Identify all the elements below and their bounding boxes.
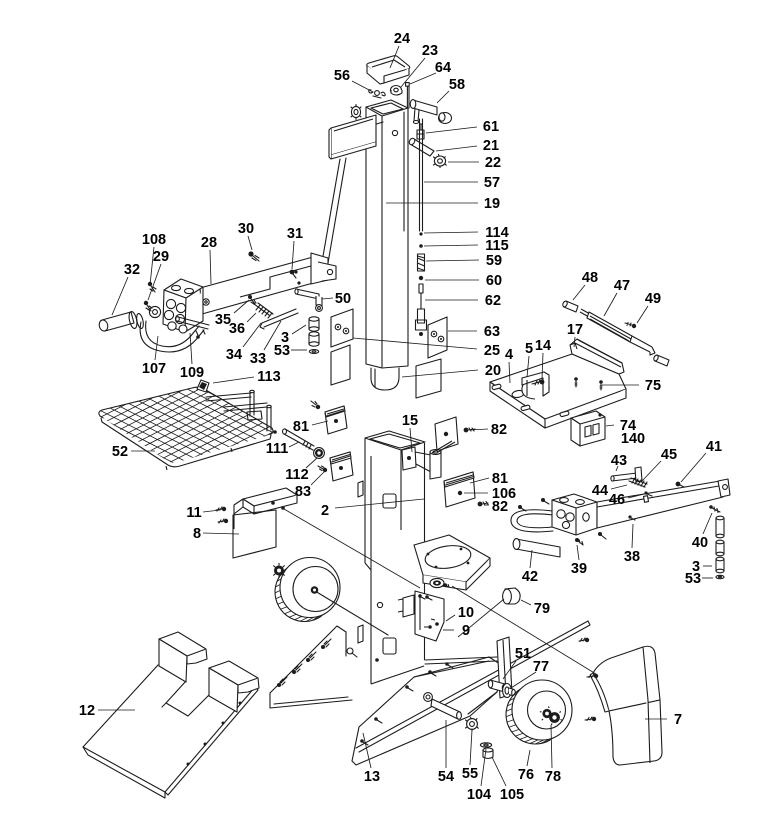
svg-text:11: 11 bbox=[186, 505, 201, 521]
svg-text:81: 81 bbox=[492, 471, 508, 487]
svg-text:52: 52 bbox=[112, 444, 128, 460]
svg-text:53: 53 bbox=[274, 343, 290, 359]
svg-text:19: 19 bbox=[484, 196, 500, 212]
svg-text:108: 108 bbox=[142, 232, 166, 248]
svg-text:57: 57 bbox=[484, 175, 500, 191]
svg-text:77: 77 bbox=[533, 659, 549, 675]
svg-text:23: 23 bbox=[422, 43, 438, 59]
svg-text:83: 83 bbox=[295, 484, 311, 500]
svg-text:45: 45 bbox=[661, 447, 677, 463]
svg-text:61: 61 bbox=[483, 119, 499, 135]
svg-text:28: 28 bbox=[201, 235, 217, 251]
svg-text:112: 112 bbox=[285, 467, 308, 483]
svg-text:21: 21 bbox=[483, 138, 499, 154]
svg-text:54: 54 bbox=[438, 769, 454, 785]
svg-text:82: 82 bbox=[492, 499, 508, 515]
svg-text:32: 32 bbox=[124, 262, 140, 278]
svg-text:29: 29 bbox=[153, 249, 169, 265]
svg-text:47: 47 bbox=[614, 278, 630, 294]
svg-text:33: 33 bbox=[250, 351, 266, 367]
svg-text:55: 55 bbox=[462, 766, 478, 782]
svg-text:4: 4 bbox=[505, 347, 513, 363]
svg-text:48: 48 bbox=[582, 270, 598, 286]
svg-text:20: 20 bbox=[485, 363, 501, 379]
svg-text:14: 14 bbox=[535, 338, 551, 354]
svg-text:78: 78 bbox=[545, 769, 561, 785]
svg-text:140: 140 bbox=[621, 431, 645, 447]
svg-text:34: 34 bbox=[226, 347, 242, 363]
svg-text:75: 75 bbox=[645, 378, 661, 394]
svg-text:43: 43 bbox=[611, 453, 627, 469]
svg-text:10: 10 bbox=[458, 605, 474, 621]
svg-text:15: 15 bbox=[402, 413, 418, 429]
svg-text:38: 38 bbox=[624, 549, 640, 565]
svg-text:36: 36 bbox=[229, 321, 245, 337]
svg-text:8: 8 bbox=[193, 526, 201, 542]
svg-text:115: 115 bbox=[485, 238, 508, 254]
svg-text:9: 9 bbox=[462, 623, 470, 639]
svg-text:109: 109 bbox=[180, 365, 204, 381]
svg-text:13: 13 bbox=[364, 769, 380, 785]
svg-text:62: 62 bbox=[485, 293, 501, 309]
svg-text:111: 111 bbox=[266, 441, 289, 457]
svg-text:53: 53 bbox=[685, 571, 701, 587]
svg-text:50: 50 bbox=[335, 291, 351, 307]
svg-text:46: 46 bbox=[609, 492, 625, 508]
svg-text:24: 24 bbox=[394, 31, 410, 47]
svg-text:76: 76 bbox=[518, 767, 534, 783]
svg-text:39: 39 bbox=[571, 561, 587, 577]
svg-text:82: 82 bbox=[491, 422, 507, 438]
svg-text:113: 113 bbox=[257, 369, 280, 385]
svg-text:42: 42 bbox=[522, 569, 538, 585]
svg-text:60: 60 bbox=[486, 273, 502, 289]
svg-text:17: 17 bbox=[567, 322, 583, 338]
svg-text:63: 63 bbox=[484, 324, 500, 340]
svg-text:5: 5 bbox=[525, 341, 533, 357]
svg-text:58: 58 bbox=[449, 77, 465, 93]
svg-text:41: 41 bbox=[706, 439, 722, 455]
svg-text:79: 79 bbox=[534, 601, 550, 617]
svg-text:44: 44 bbox=[592, 483, 608, 499]
svg-text:59: 59 bbox=[486, 253, 502, 269]
svg-text:2: 2 bbox=[321, 503, 329, 519]
svg-text:40: 40 bbox=[692, 535, 708, 551]
svg-text:25: 25 bbox=[484, 343, 500, 359]
svg-text:56: 56 bbox=[334, 68, 350, 84]
svg-text:81: 81 bbox=[293, 419, 309, 435]
svg-text:107: 107 bbox=[142, 361, 166, 377]
svg-text:31: 31 bbox=[287, 226, 303, 242]
svg-text:30: 30 bbox=[238, 221, 254, 237]
svg-text:12: 12 bbox=[79, 703, 95, 719]
svg-text:7: 7 bbox=[674, 712, 682, 728]
svg-text:51: 51 bbox=[515, 646, 531, 662]
svg-text:49: 49 bbox=[645, 291, 661, 307]
svg-text:104: 104 bbox=[467, 787, 491, 803]
svg-text:105: 105 bbox=[500, 787, 524, 803]
svg-text:22: 22 bbox=[485, 155, 501, 171]
svg-text:64: 64 bbox=[435, 60, 451, 76]
